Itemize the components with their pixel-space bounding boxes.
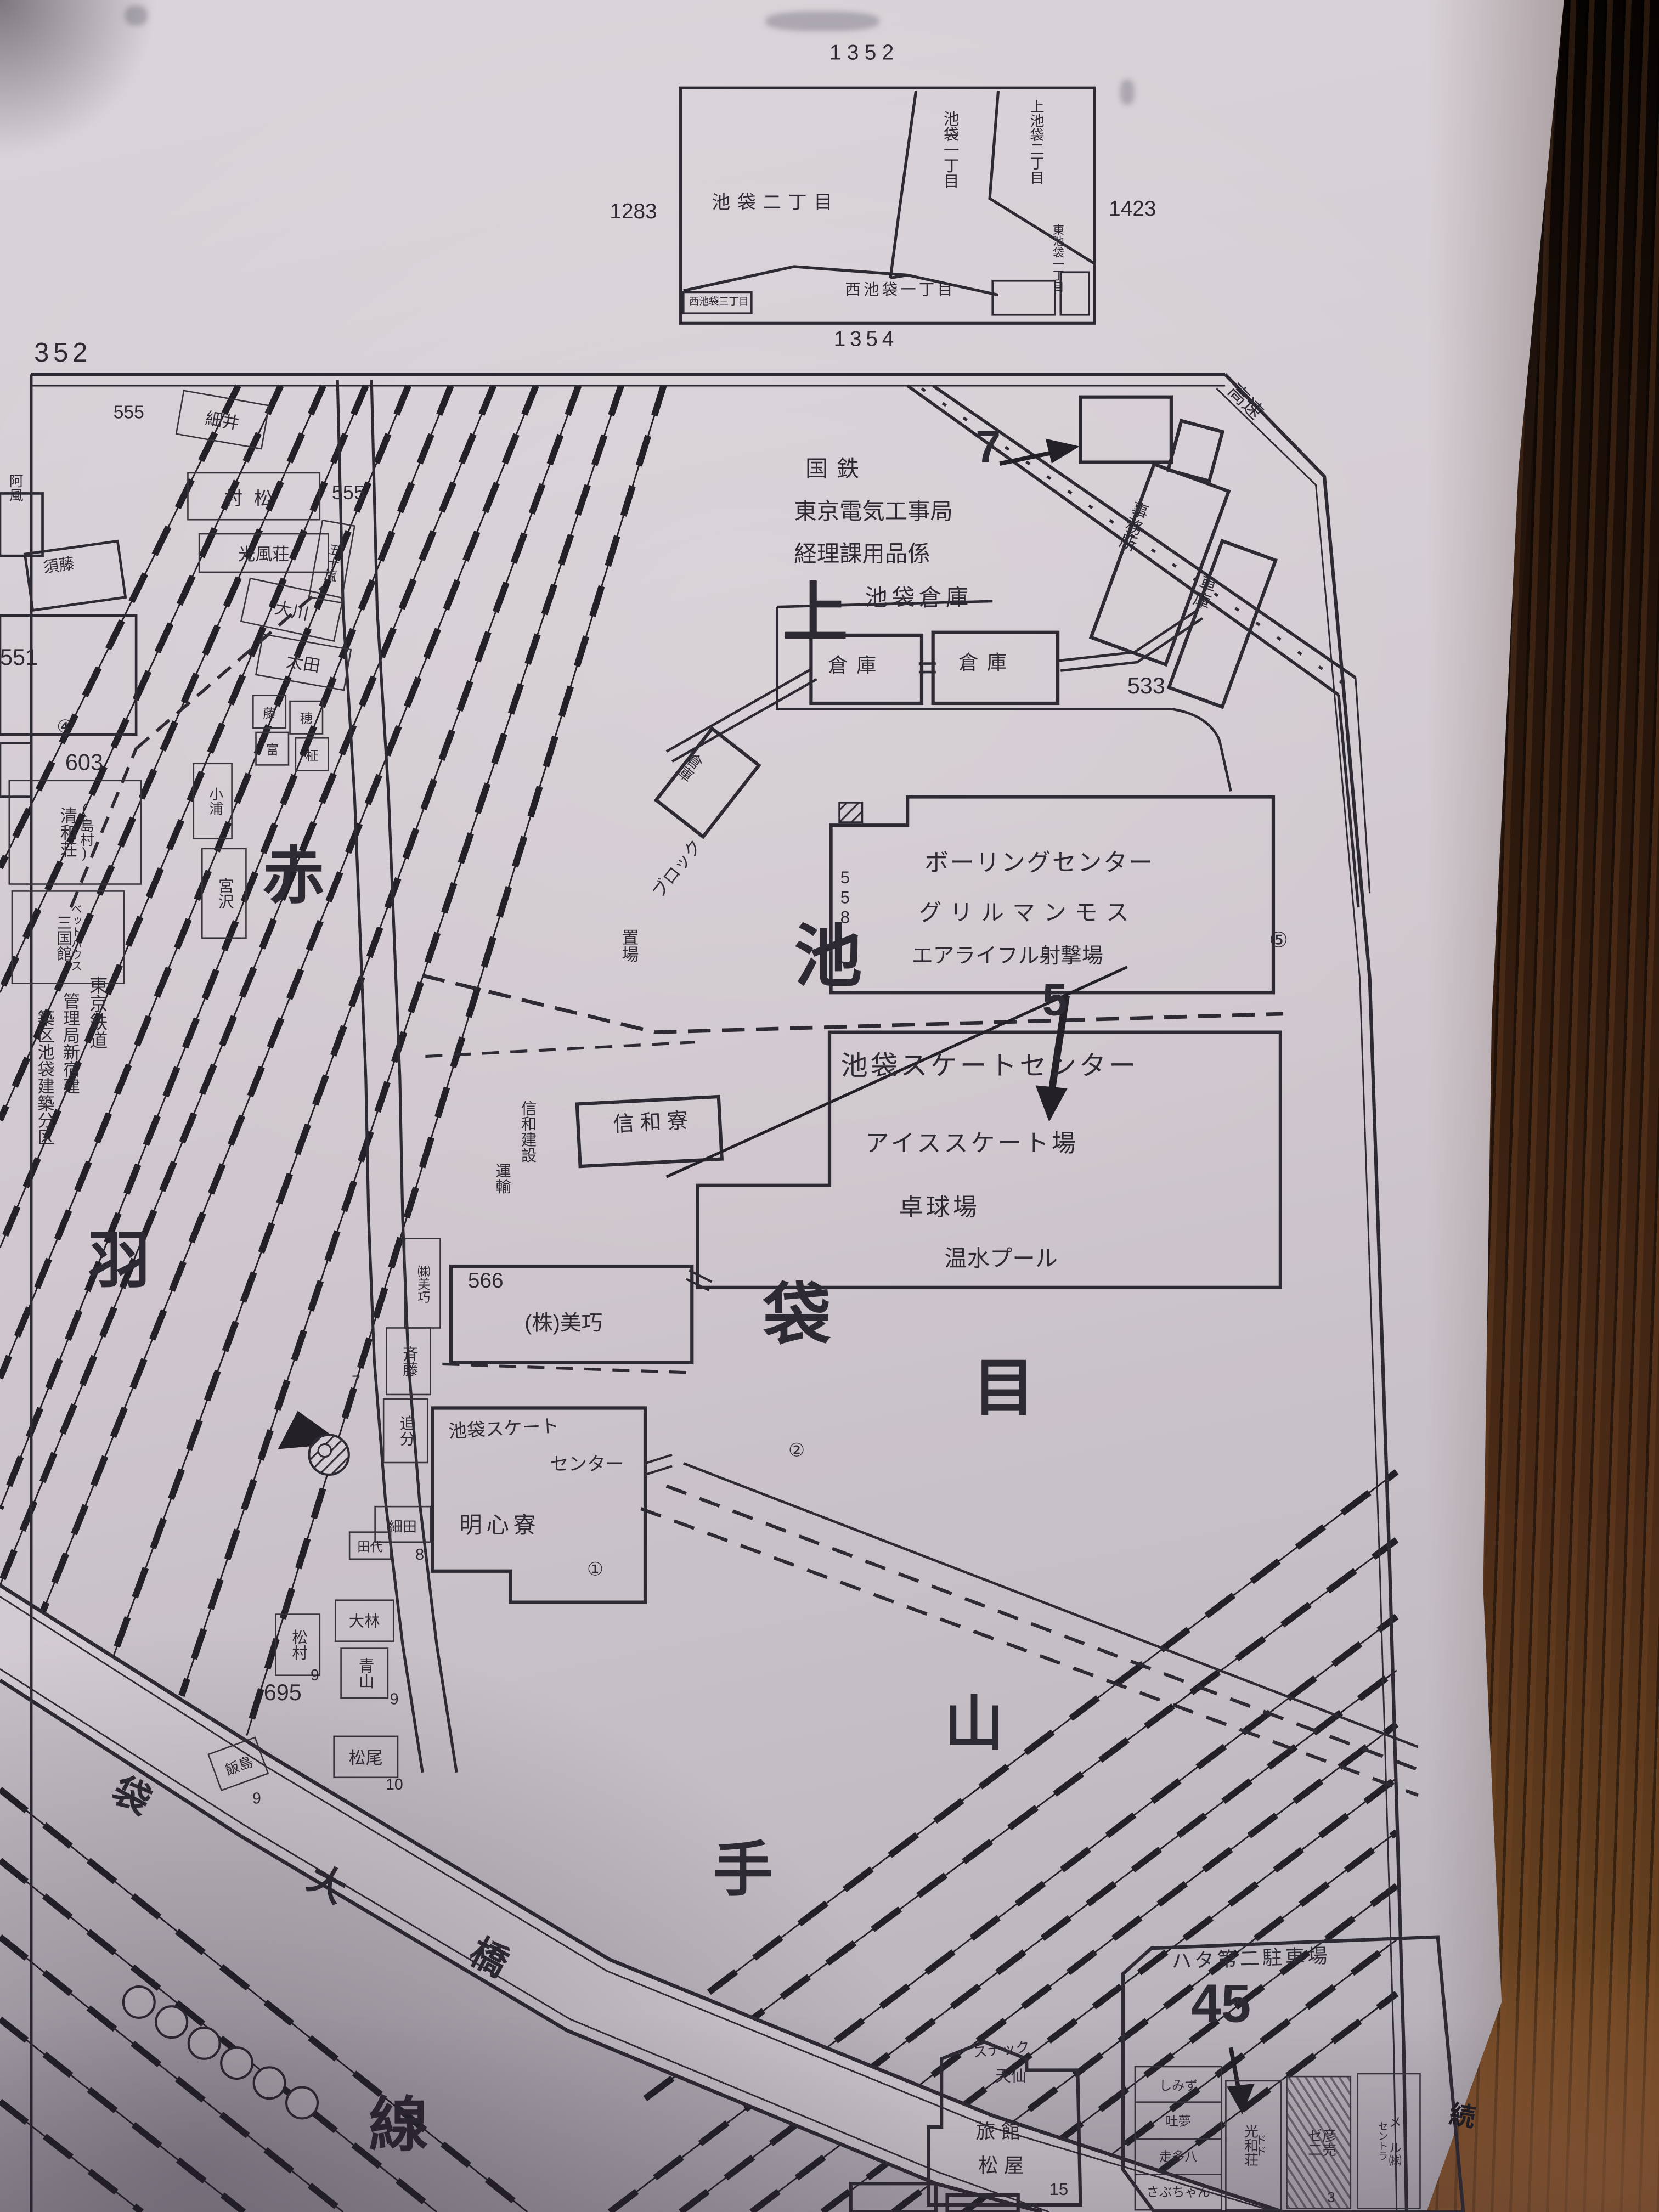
label-grill: グリルマンモス (919, 902, 1137, 927)
num-555-b: 555 (332, 482, 365, 504)
inset-area-ikebukuro2: 池袋二丁目 (712, 193, 839, 213)
sheet-corner-number: 352 (34, 340, 92, 369)
house-aoyama: 青山 (340, 1647, 388, 1699)
house-tashiro: 田代 (349, 1531, 392, 1560)
bigchar-kami: 上 (783, 579, 848, 649)
housenum-9c: 9 (252, 1792, 261, 1809)
marker-circle4: ④ (57, 718, 73, 737)
house-shimizu: しみず (1136, 2067, 1221, 2102)
house-miyazawa: 宮沢 (201, 848, 247, 939)
num-603: 603 (65, 752, 103, 776)
label-chikuku: 築区池袋建築分区 (37, 1009, 54, 1145)
label-kanrikyoku: 管理局新宿建 (63, 992, 80, 1094)
label-meishin-center: センター (550, 1455, 624, 1475)
label-dodo: ドド (1255, 2134, 1266, 2157)
house-koura: 小浦 (193, 763, 233, 840)
label-koujikyoku: 東京電気工事局 (794, 500, 953, 525)
bigchar-sen: 線 (369, 2093, 428, 2157)
label-biko: (株)美巧 (524, 1313, 602, 1336)
label-keirika: 経理課用品係 (794, 543, 930, 568)
label-souko-a: 倉庫 (828, 655, 884, 676)
label-bowling: ボーリングセンター (924, 851, 1154, 877)
house-oiwake: 追分 (383, 1398, 428, 1463)
house-tiny-3: 富 (255, 732, 289, 766)
inset-area-ikebukuro1: 池袋一丁目 (941, 111, 957, 189)
house-saito: 斉藤 (386, 1327, 431, 1395)
label-kowaso: 光和荘 (1241, 2124, 1255, 2167)
label-pingpong: 卓球場 (899, 1195, 980, 1221)
label-mail: メール㈱ (1387, 2115, 1400, 2166)
house-sangokukan: 三国館 ベットハウス (12, 890, 125, 984)
bleedthrough-smudge-1 (766, 12, 879, 31)
inset-sheet-top: 1352 (830, 43, 900, 66)
bleedthrough-smudge-2 (125, 5, 147, 25)
inset-sheet-bottom: 1354 (834, 329, 898, 352)
house-tiny-4: 柾 (295, 737, 329, 771)
housenum-7: 7 (352, 1375, 360, 1392)
label-shinwa-unyu: 運輸 (493, 1163, 509, 1194)
house-sotahachi: 走多八 (1136, 2137, 1221, 2173)
bigchar-fukuro: 袋 (763, 1280, 831, 1354)
scene: 1352 1283 1423 1354 池袋二丁目 池袋一丁目 上池袋二丁目 東… (0, 0, 1659, 2212)
buildings (0, 397, 1463, 2212)
label-tensen: 天仙 (995, 2070, 1026, 2087)
inset-area-kamiikebukuro2: 上池袋二丁目 (1026, 99, 1041, 184)
label-seiwaso: 清和荘 (60, 807, 77, 858)
west-street (337, 380, 456, 1773)
num-555-a: 555 (114, 403, 144, 422)
house-muramatsu: 村松 (187, 472, 320, 521)
marker-5: 5 (1042, 975, 1068, 1024)
house-obayashi: 大林 (335, 1599, 394, 1642)
inset-area-nishiikebukuro3: 西池袋三丁目 (689, 298, 749, 309)
num-533: 533 (1127, 675, 1165, 699)
label-ryokan: 旅館 (975, 2121, 1026, 2143)
house-tomu: 吐夢 (1136, 2102, 1221, 2137)
label-ice-rink: アイススケート場 (865, 1132, 1079, 1158)
label-tokyo-tetsudo: 東京鉄道 (88, 975, 106, 1049)
label-bed-house: ベットハウス (70, 903, 82, 971)
marker-circle1: ① (587, 1560, 603, 1579)
housenum-10: 10 (386, 1778, 403, 1795)
house-kowaso: 光和荘 ドド (1225, 2080, 1282, 2211)
label-shinwa-ryo: 信和寮 (613, 1110, 695, 1137)
housenum-3: 3 (1327, 2192, 1335, 2208)
bigchar-hane: 羽 (88, 1228, 150, 1295)
map-linework (0, 0, 1659, 2212)
label-kokutetsu: 国鉄 (805, 458, 868, 483)
label-meishin-ryo: 明心寮 (459, 1514, 540, 1539)
scribble-overlay (1288, 2077, 1350, 2208)
housenum-8: 8 (415, 1548, 424, 1565)
num-551: 551 (0, 647, 38, 672)
num-558: 558 (837, 868, 854, 928)
inset-sheet-right: 1423 (1109, 199, 1156, 222)
house-tiny-1: 藤 (252, 695, 286, 729)
bigchar-aka: 赤 (262, 844, 325, 911)
house-matsumura: 松村 (275, 1613, 320, 1676)
edge-label-tsuzuki: 続 (1447, 2101, 1477, 2133)
boundary-dashes (71, 587, 1418, 1795)
map-border (31, 374, 1407, 2212)
label-central: セントラ (1378, 2121, 1387, 2161)
housenum-9a: 9 (311, 1669, 319, 1686)
housenum-9b: 9 (390, 1693, 399, 1710)
inset-sheet-left: 1283 (610, 201, 657, 224)
house-row-block: しみず 吐夢 走多八 さぶちゃん (1135, 2066, 1222, 2211)
label-pool: 温水プール (944, 1248, 1058, 1272)
bigchar-ike: 池 (794, 922, 862, 995)
bigchar-yama: 山 (944, 1691, 1004, 1756)
label-air-rifle: エアライフル射撃場 (912, 946, 1103, 969)
num-695: 695 (264, 1681, 302, 1706)
label-souko-b: 倉庫 (958, 652, 1015, 674)
house-scribbled: ゼ二 彦売 (1286, 2076, 1351, 2209)
house-seiwaso: 清和荘 (島村) (9, 780, 142, 885)
num-566: 566 (468, 1271, 504, 1294)
house-tiny-2: 穂 (289, 701, 323, 735)
marker-circle5: ⑤ (1269, 930, 1288, 953)
marker-circle2: ② (788, 1441, 805, 1460)
bridge-scallops (123, 1987, 318, 2118)
inset-area-nishiikebukuro1: 西池袋一丁目 (845, 284, 956, 301)
inset-area-higashiikebukuro1: 東池袋一丁目 (1052, 224, 1064, 292)
transformer-mark (278, 1411, 349, 1475)
label-ikebukuro-soko: 池袋倉庫 (865, 587, 973, 612)
marker-7: 7 (975, 422, 1001, 471)
label-shimamura: (島村) (77, 803, 91, 862)
label-skate-center: 池袋スケートセンター (841, 1053, 1139, 1082)
photo-of-map: 1352 1283 1423 1354 池袋二丁目 池袋一丁目 上池袋二丁目 東… (0, 0, 1659, 2212)
house-kofuso: 光風荘 (199, 533, 329, 573)
house-biko-vertical: ㈱美巧 (404, 1238, 441, 1328)
label-okiba: 置場 (621, 929, 638, 963)
bigchar-te: 手 (713, 1838, 773, 1902)
house-afu: 阿風 (5, 473, 20, 502)
bigchar-me: 目 (973, 1356, 1035, 1423)
label-sangokukan: 三国館 (55, 914, 70, 961)
house-central-mail: セントラ メール㈱ (1357, 2073, 1420, 2209)
label-shinwa-kensetsu: 信和建設 (519, 1101, 534, 1163)
house-matsuo: 松尾 (333, 1736, 398, 1779)
bleedthrough-smudge-3 (1120, 80, 1135, 105)
label-matsuya: 松屋 (978, 2155, 1029, 2177)
house-sabuchan: さぶちゃん (1136, 2174, 1221, 2209)
num-45: 45 (1191, 1977, 1251, 2035)
housenum-15: 15 (1049, 2181, 1069, 2199)
